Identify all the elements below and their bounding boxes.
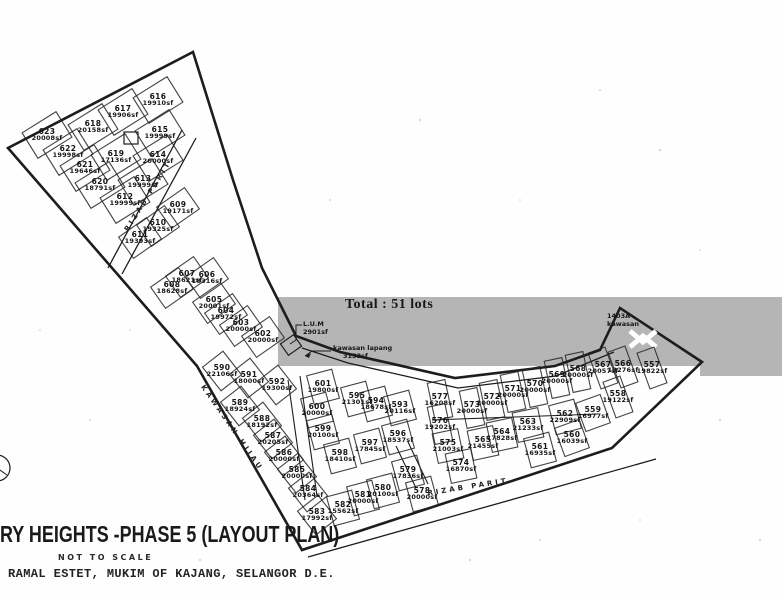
lus-line2: 2901sf [303,328,328,336]
scan-gray-band-right [700,366,782,376]
open-space-name: kawasan lapang [333,344,392,352]
lot-label-586: 58620000sf [269,449,300,463]
lot-label-601: 60119800sf [308,380,339,394]
tip-lot-label: 1403A kawasan [607,313,639,328]
lot-label-591: 59118000sf [234,371,265,385]
lot-label-615: 61519999sf [145,126,176,140]
title-block: RY HEIGHTS -PHASE 5 (LAYOUT PLAN) NOT TO… [0,521,420,548]
lot-label-621: 62119646sf [70,161,101,175]
lot-label-623: 62320008sf [32,128,63,142]
lot-label-592: 59219300sf [262,378,293,392]
lot-label-620: 62018791sf [85,178,116,192]
lot-label-566: 56613276sf [608,360,639,374]
lot-label-619: 61917136sf [101,150,132,164]
lot-label-587: 58720205sf [258,432,289,446]
lot-label-596: 59618537sf [383,430,414,444]
lot-label-589: 58918924sf [225,399,256,413]
scanned-layout-plan: 62320008sf62219998sf62119646sf62018791sf… [0,0,782,600]
lot-label-617: 61719906sf [108,105,139,119]
lot-label-565: 56521455sf [468,436,499,450]
scale-note: NOT TO SCALE [58,553,153,562]
lot-label-557: 55719822sf [637,361,668,375]
lot-label-597: 59717845sf [355,439,386,453]
lot-label-616: 61619910sf [143,93,174,107]
lus-label: L.U.M 2901sf [303,321,328,336]
lot-label-600: 60020000sf [302,403,333,417]
lot-label-610: 61019325sf [143,219,174,233]
open-space-size: 3133sf [333,352,368,360]
lot-label-606: 60618316sf [192,271,223,285]
lot-label-588: 58818192sf [247,415,278,429]
lot-label-574: 57416870sf [446,459,477,473]
lot-label-558: 55819122sf [603,390,634,404]
lot-label-585: 58520000sf [282,466,313,480]
lot-label-602: 60220000sf [248,330,279,344]
lot-label-559: 55916977sf [578,406,609,420]
lot-label-584: 58420364sf [293,485,324,499]
lot-label-579: 57917836sf [393,466,424,480]
compass-icon [0,455,10,481]
lot-label-593: 59320116sf [385,401,416,415]
open-space-label: kawasan lapang 3133sf [333,345,392,360]
total-lots-label: Total : 51 lots [345,297,433,313]
lot-label-580: 58020100sf [368,484,399,498]
plan-title: RY HEIGHTS -PHASE 5 (LAYOUT PLAN) [0,521,328,548]
lot-label-562: 56222909sf [550,410,581,424]
tip-lot-text: kawasan [607,320,639,328]
lot-label-577: 57716208sf [425,393,456,407]
boundary-notch [124,132,138,144]
lot-label-612: 61219999sf [110,193,141,207]
lot-label-576: 57619202sf [425,417,456,431]
lot-label-561: 56116935sf [525,443,556,457]
address-line: RAMAL ESTET, MUKIM OF KAJANG, SELANGOR D… [8,567,335,581]
lot-label-575: 57521003sf [433,439,464,453]
lot-label-599: 59920100sf [308,425,339,439]
lot-label-598: 59818410sf [325,449,356,463]
lot-label-618: 61820158sf [78,120,109,134]
lot-label-609: 60919171sf [163,201,194,215]
lot-label-560: 56016039sf [557,431,588,445]
lot-label-622: 62219998sf [53,145,84,159]
